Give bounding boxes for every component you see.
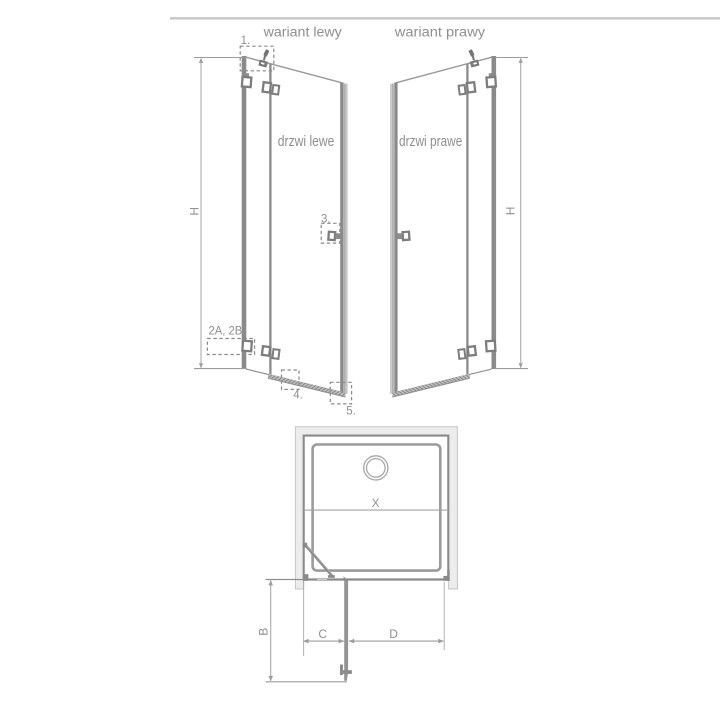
svg-text:C: C [318,627,327,641]
svg-text:wariant prawy: wariant prawy [394,24,486,40]
svg-text:B: B [257,628,271,636]
svg-text:3.: 3. [321,213,331,225]
svg-text:drzwi lewe: drzwi lewe [278,133,335,150]
svg-text:4.: 4. [293,389,303,401]
svg-text:1.: 1. [241,35,251,47]
svg-text:5.: 5. [346,406,356,418]
svg-text:H: H [188,207,202,216]
svg-text:wariant lewy: wariant lewy [263,24,343,40]
svg-text:drzwi prawe: drzwi prawe [399,133,462,150]
svg-text:D: D [389,627,398,641]
svg-text:2A, 2B: 2A, 2B [209,325,243,337]
svg-text:X: X [372,498,380,510]
svg-text:H: H [504,207,518,216]
